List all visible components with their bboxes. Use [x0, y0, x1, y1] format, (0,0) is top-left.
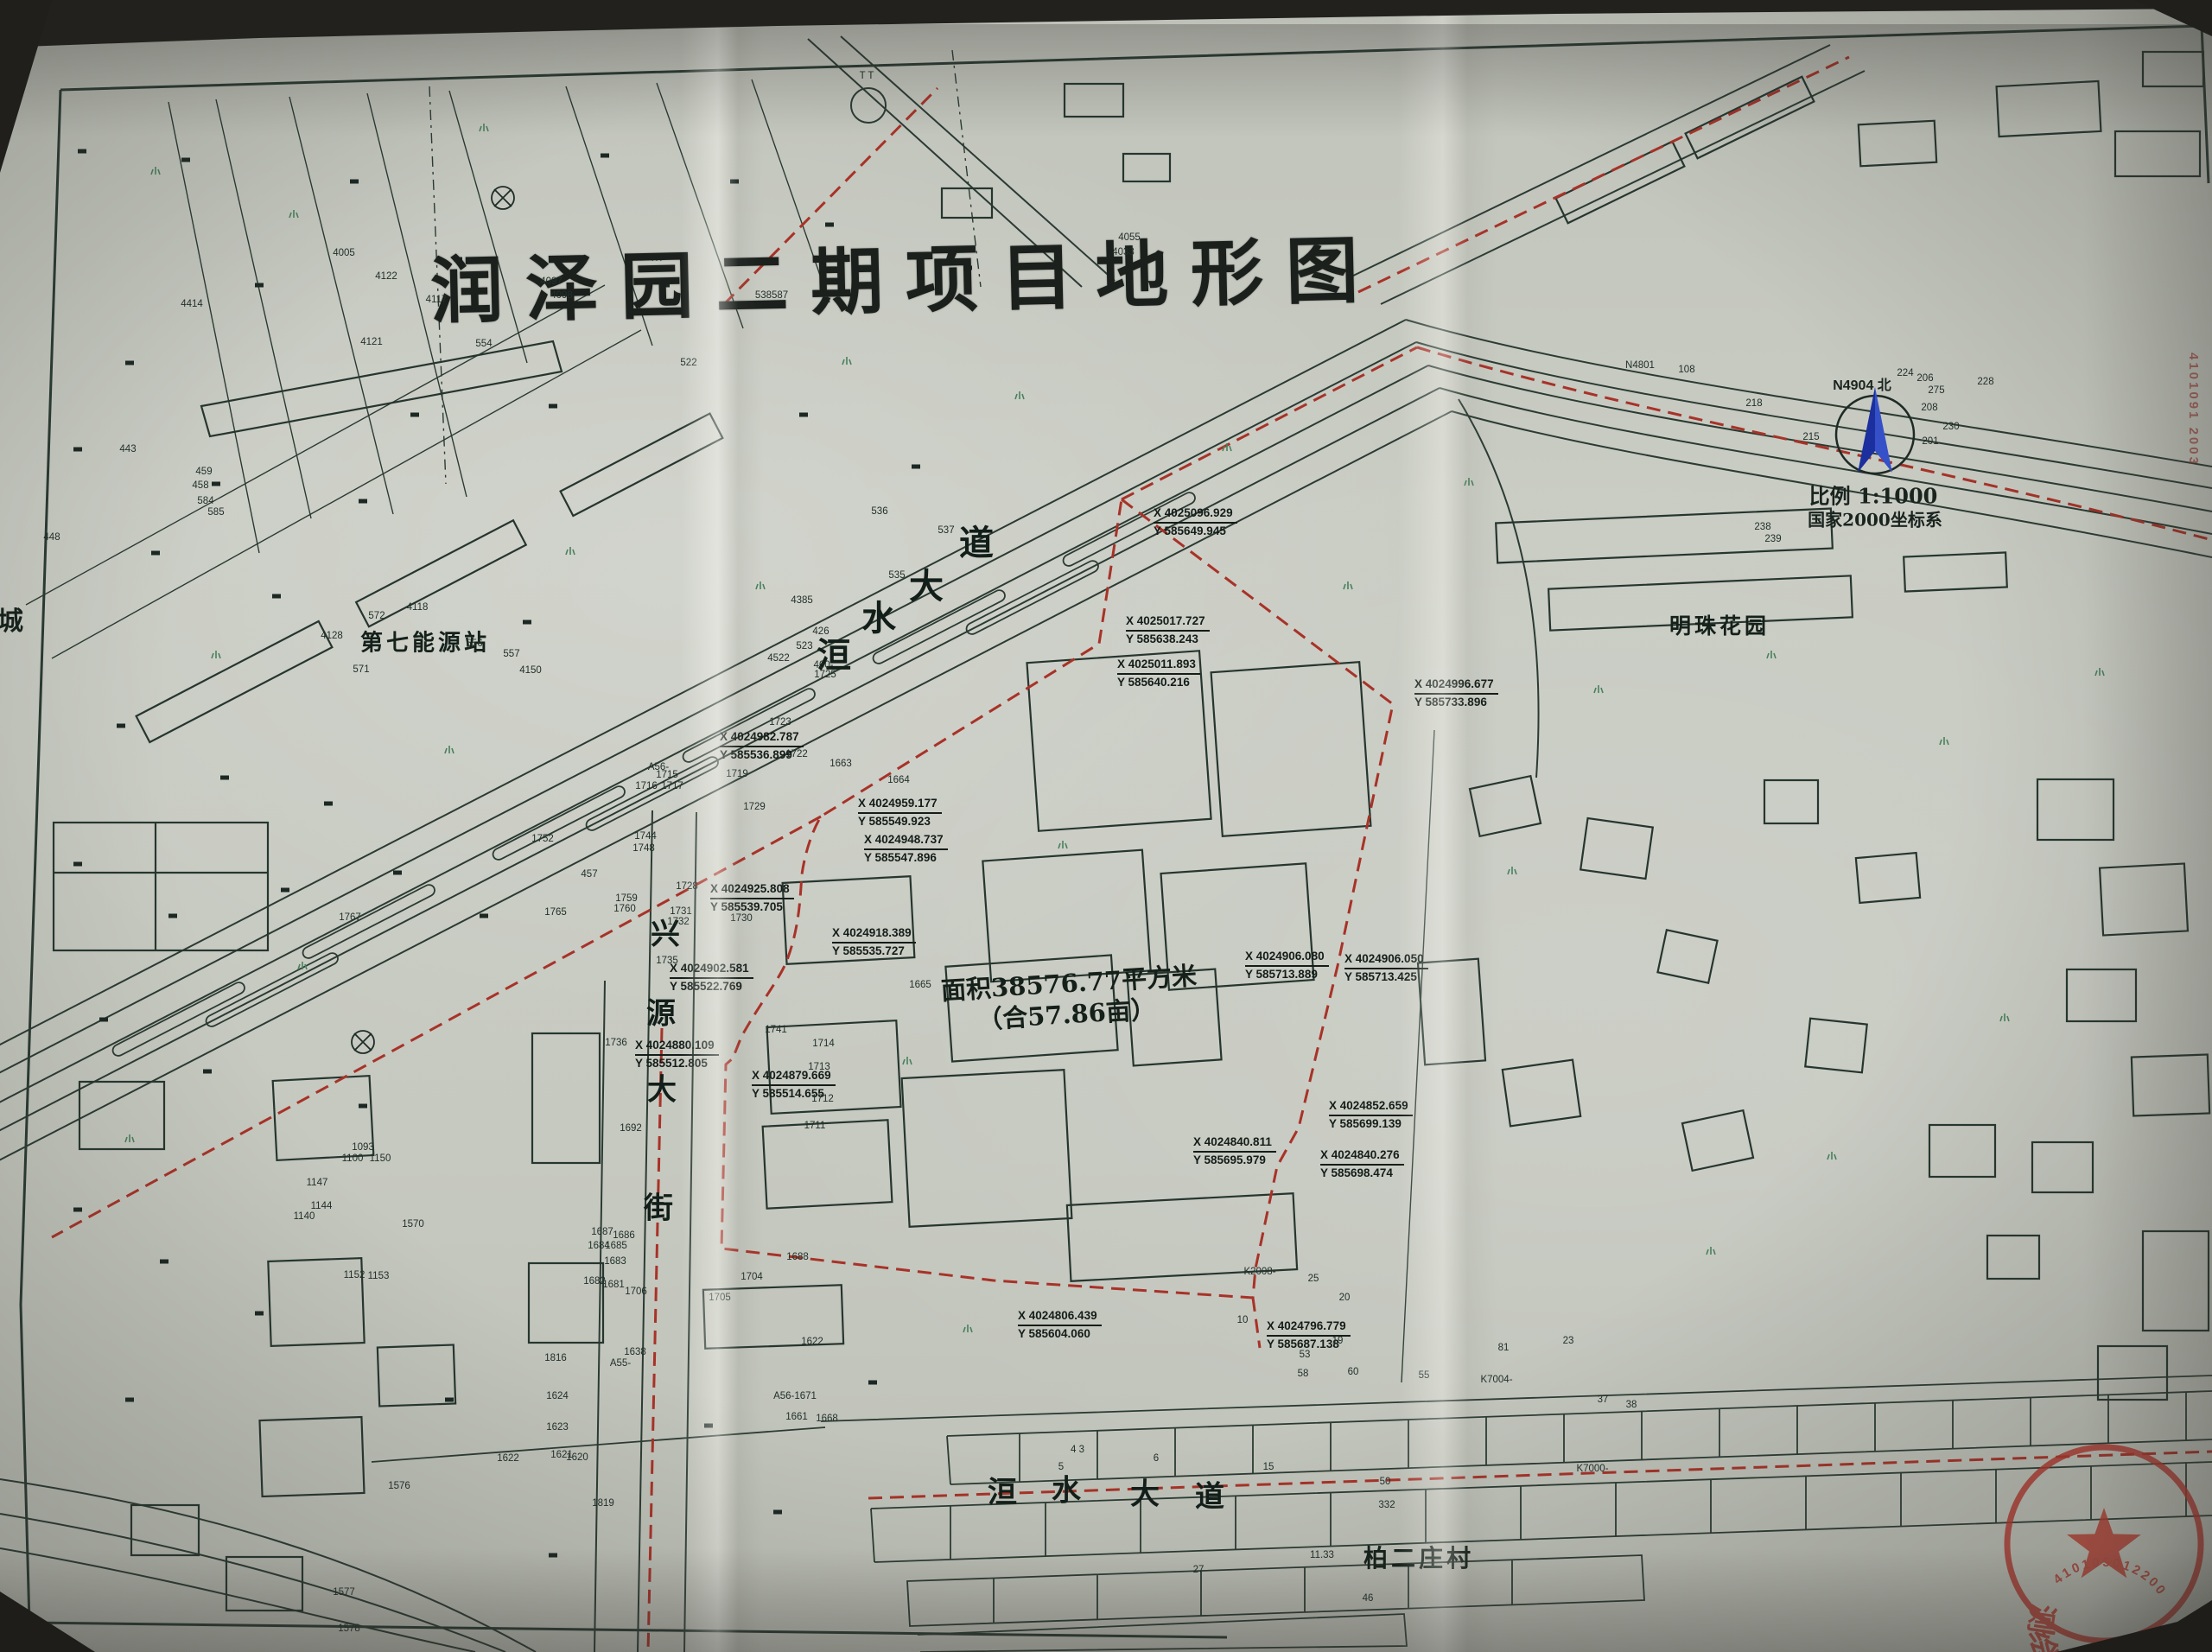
map-linework: 测绘服务有限公司 4101050122003 — [0, 0, 2212, 1652]
vegetation-symbols — [125, 124, 2104, 1332]
vertical-street — [594, 810, 696, 1652]
north-arrow — [1836, 387, 1914, 473]
survey-ticks — [73, 149, 972, 1558]
map-photo: { "title": "润泽园二期项目地形图", "north": { "lab… — [0, 0, 2212, 1652]
buildings — [54, 52, 2209, 1611]
map-frame — [21, 26, 2209, 1637]
field-lines — [26, 50, 1434, 1382]
village-houses — [372, 1376, 2212, 1652]
diagonal-road — [0, 36, 2212, 1178]
